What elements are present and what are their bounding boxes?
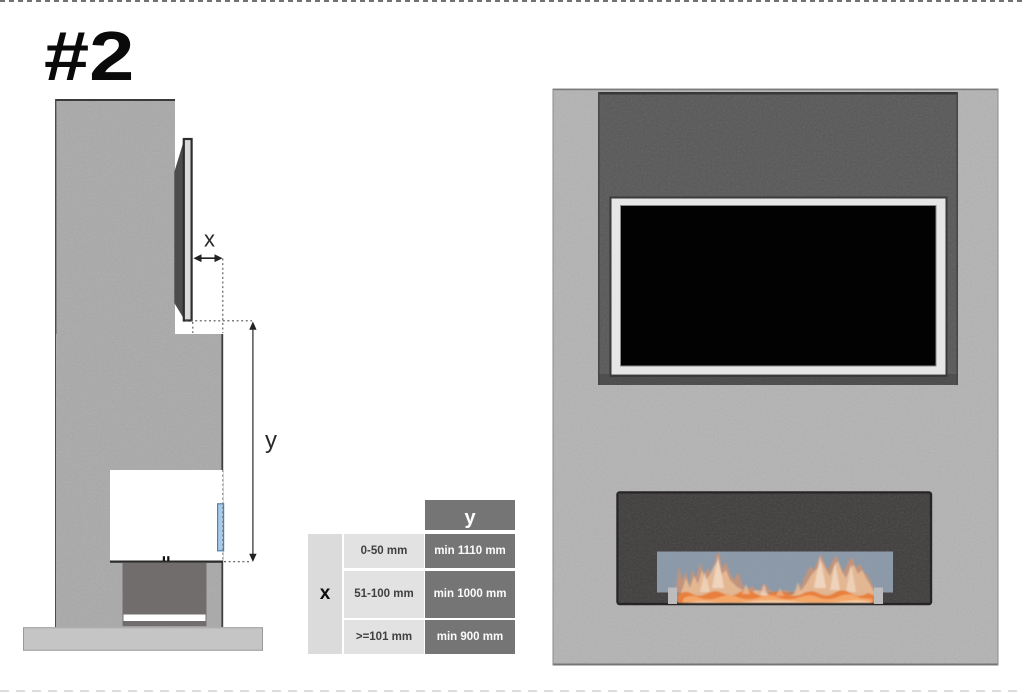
svg-text:y: y [265,427,277,454]
svg-text:x: x [204,227,215,252]
